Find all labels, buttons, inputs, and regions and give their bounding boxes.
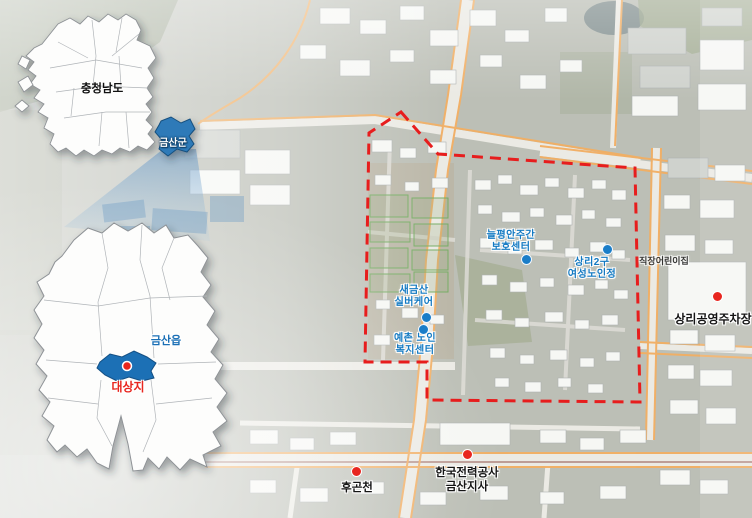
blue-marker-dot-sae-geumsan (421, 312, 432, 323)
landmark-label-hugoncheon: 후곤천 (341, 479, 373, 495)
blue-marker-dot-sangri-2gu (602, 244, 613, 255)
red-marker-dot-sangri-parking (712, 291, 723, 302)
map-figure: 직장어린이집 늘평안주간 보호센터 상리2구 여성노인정 새금산 실버케어 예촌… (0, 0, 752, 518)
red-marker-dot-hugoncheon (351, 466, 362, 477)
red-marker-dot-kepco (462, 449, 473, 460)
province-name-label: 충청남도 (81, 80, 123, 96)
poi-label-neulpyeongan-daycare-center: 늘평안주간 보호센터 (487, 230, 536, 253)
county-locator-map (34, 223, 227, 471)
poi-label-sangri-2gu-womens-senior-hall: 상리2구 여성노인정 (568, 257, 617, 280)
basemap-label-workplace-daycare: 직장어린이집 (639, 254, 689, 267)
poi-label-yechon-senior-welfare-center: 예촌 노인 복지센터 (394, 333, 436, 356)
blue-marker-dot-neulpyeongan (521, 254, 532, 265)
landmark-label-kepco-geumsan-branch: 한국전력공사 금산지사 (435, 467, 498, 495)
poi-label-sae-geumsan-silver-care: 새금산 실버케어 (395, 285, 434, 308)
county-highlight-label: 금산읍 (151, 332, 181, 348)
blue-marker-dot-yechon (418, 324, 429, 335)
landmark-label-sangri-public-parking: 상리공영주차장 (674, 310, 751, 327)
site-marker-dot (123, 362, 132, 371)
site-label: 대상지 (111, 378, 144, 395)
province-highlight-label: 금산군 (159, 134, 187, 149)
projection-beam (64, 149, 244, 241)
